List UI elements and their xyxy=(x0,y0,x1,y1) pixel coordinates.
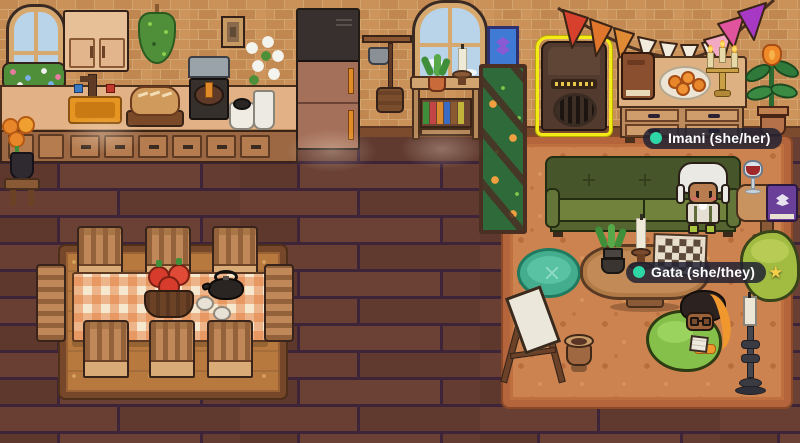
console-candle-icon xyxy=(452,48,472,88)
hanging-pan-icon xyxy=(368,47,390,65)
clay-pot xyxy=(562,332,596,374)
brown-book-icon xyxy=(621,52,655,100)
hanging-herbs-icon xyxy=(136,4,178,70)
avatar-gata[interactable] xyxy=(644,288,736,376)
dining-chair xyxy=(207,320,253,378)
coffee-machine xyxy=(188,56,230,122)
white-flower-vase xyxy=(242,36,288,132)
pot-rack xyxy=(362,33,412,113)
potted-plant xyxy=(744,44,800,138)
purple-book xyxy=(766,184,798,222)
fridge xyxy=(296,8,360,150)
tomato-basket xyxy=(140,264,200,322)
tea-cup xyxy=(213,306,231,321)
orange-flower-icon xyxy=(762,44,782,66)
floor-candlestick xyxy=(734,292,766,398)
avatar-imani[interactable] xyxy=(676,162,730,238)
speaker-grille-icon xyxy=(553,93,597,127)
bread-board xyxy=(126,86,184,130)
room-scene: Imani (she/her) Gata (she/they) ★ xyxy=(0,0,800,443)
wine-glass xyxy=(742,160,766,202)
star-badge-icon: ★ xyxy=(768,263,783,283)
table-plant-icon xyxy=(594,224,630,278)
moth-icon xyxy=(496,37,510,55)
dining-chair xyxy=(83,320,129,378)
nametag-gata[interactable]: Gata (she/they) ★ xyxy=(626,262,783,283)
upper-cabinet xyxy=(63,10,129,72)
glasses-icon xyxy=(690,317,699,326)
moth-emblem-icon xyxy=(776,194,789,206)
console-plant-icon xyxy=(420,56,452,94)
status-dot xyxy=(650,132,662,144)
tea-cup xyxy=(196,296,214,311)
player-name: Imani (she/her) xyxy=(668,131,771,145)
status-dot xyxy=(633,266,645,278)
paper-icon xyxy=(689,335,709,353)
candelabra xyxy=(703,42,743,100)
easel xyxy=(502,284,564,388)
player-name: Gata (she/they) xyxy=(651,265,755,279)
nametag-imani[interactable]: Imani (she/her) xyxy=(643,128,782,149)
hanging-basket-icon xyxy=(376,87,404,113)
stitch-icon xyxy=(546,267,558,279)
dining-chair xyxy=(36,264,66,342)
plant-trellis xyxy=(479,64,527,234)
face xyxy=(686,312,714,331)
face xyxy=(688,182,718,204)
torso xyxy=(686,202,720,224)
marigold-vase xyxy=(0,116,46,208)
dining-chair xyxy=(149,320,195,378)
sink xyxy=(66,74,126,124)
dining-chair xyxy=(264,264,294,342)
